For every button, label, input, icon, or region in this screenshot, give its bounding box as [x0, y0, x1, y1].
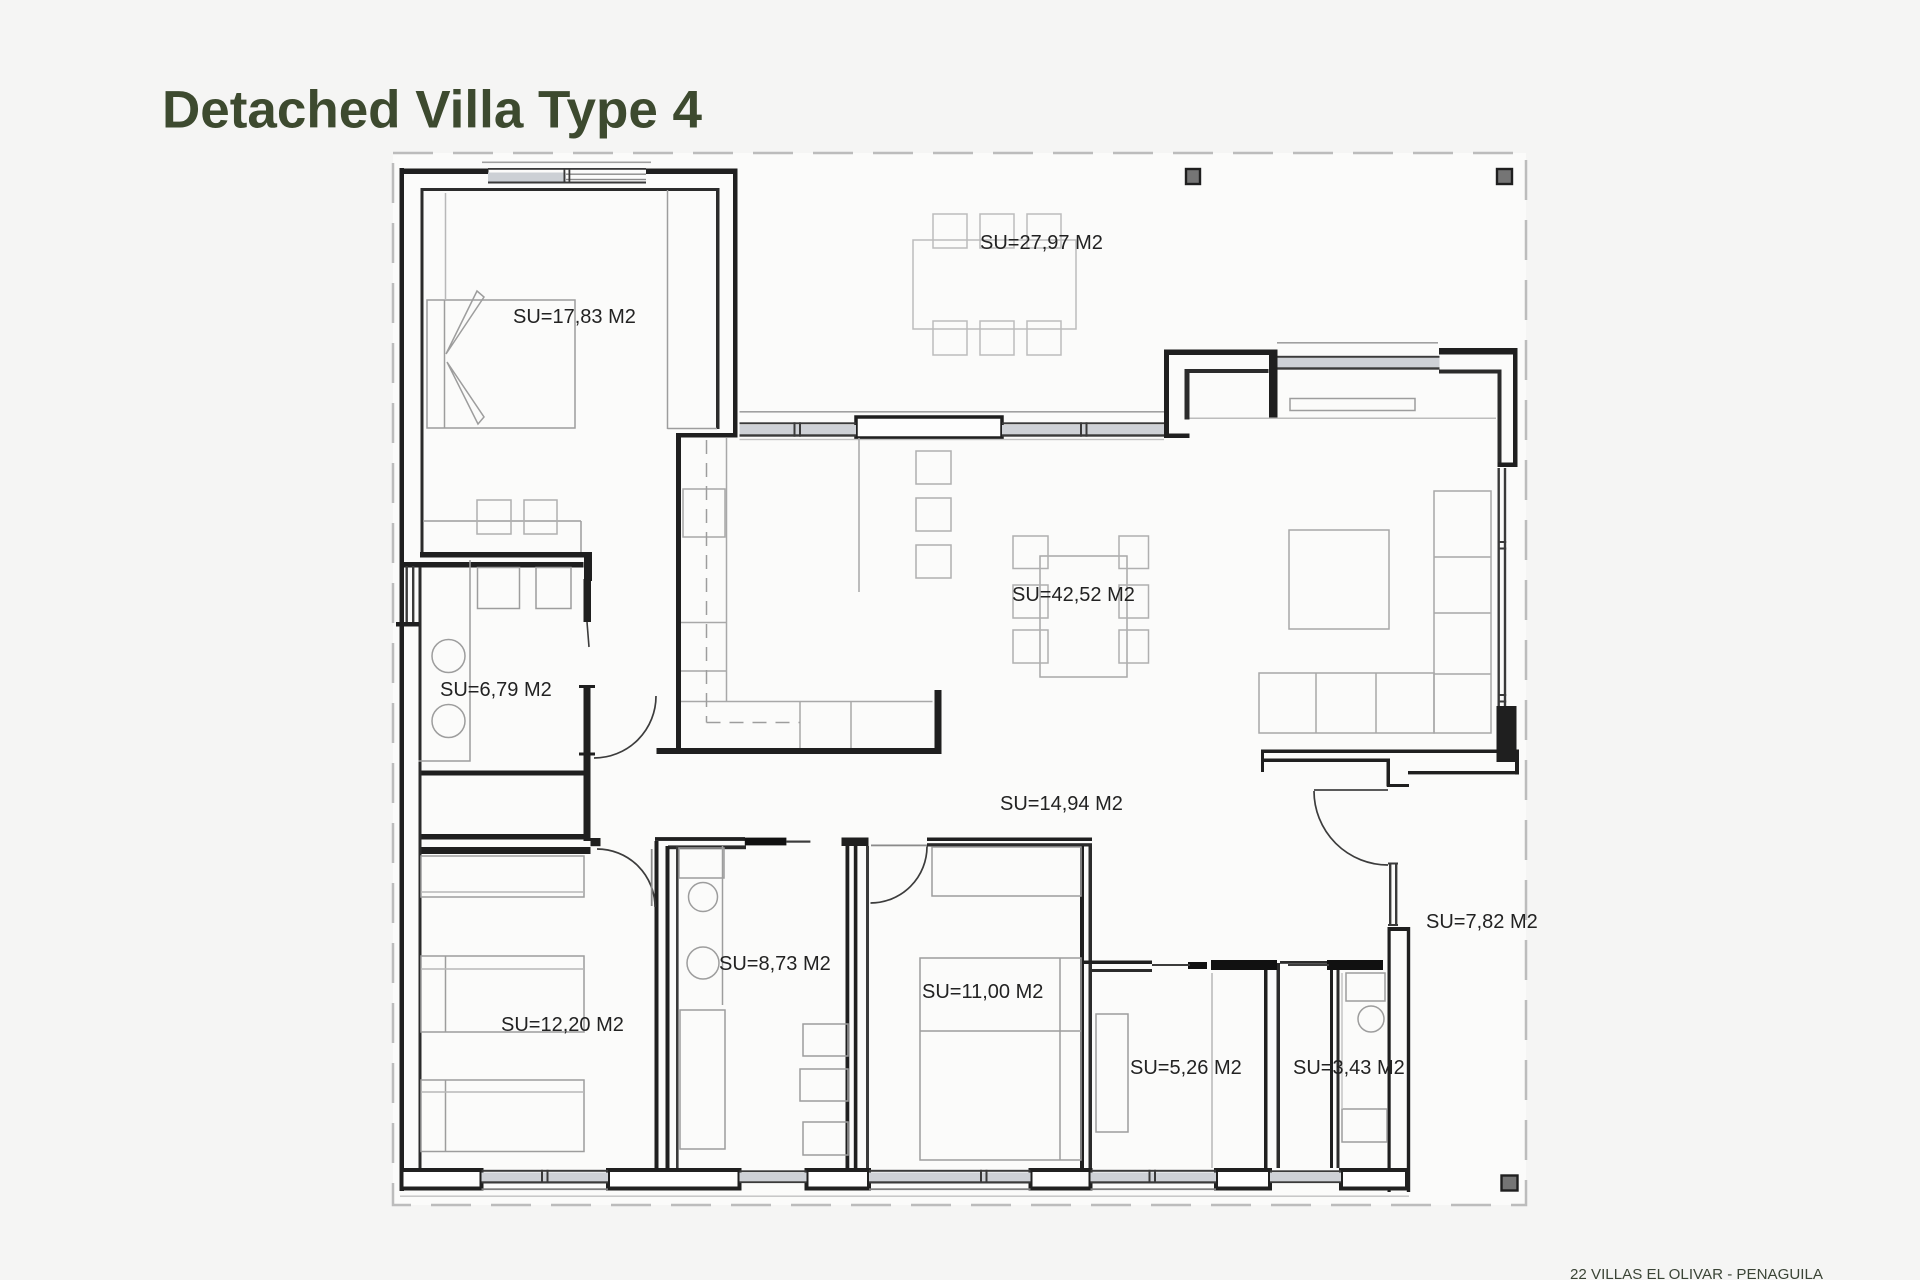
svg-text:SU=8,73 M2: SU=8,73 M2 — [719, 953, 831, 975]
svg-text:22 VILLAS EL OLIVAR - PENAGUI: 22 VILLAS EL OLIVAR - PENAGUILA — [1570, 1267, 1823, 1280]
svg-text:SU=7,82 M2: SU=7,82 M2 — [1426, 911, 1538, 933]
svg-text:Detached Villa Type 4: Detached Villa Type 4 — [162, 81, 703, 140]
svg-text:SU=17,83 M2: SU=17,83 M2 — [513, 306, 636, 328]
svg-text:SU=12,20 M2: SU=12,20 M2 — [501, 1014, 624, 1036]
svg-text:SU=6,79 M2: SU=6,79 M2 — [440, 679, 552, 701]
svg-text:SU=27,97 M2: SU=27,97 M2 — [980, 232, 1103, 254]
svg-text:SU=5,26 M2: SU=5,26 M2 — [1130, 1057, 1242, 1079]
svg-text:SU=42,52 M2: SU=42,52 M2 — [1012, 584, 1135, 606]
svg-text:SU=14,94 M2: SU=14,94 M2 — [1000, 793, 1123, 815]
svg-text:SU=3,43 M2: SU=3,43 M2 — [1293, 1057, 1405, 1079]
svg-text:SU=11,00 M2: SU=11,00 M2 — [922, 981, 1043, 1003]
